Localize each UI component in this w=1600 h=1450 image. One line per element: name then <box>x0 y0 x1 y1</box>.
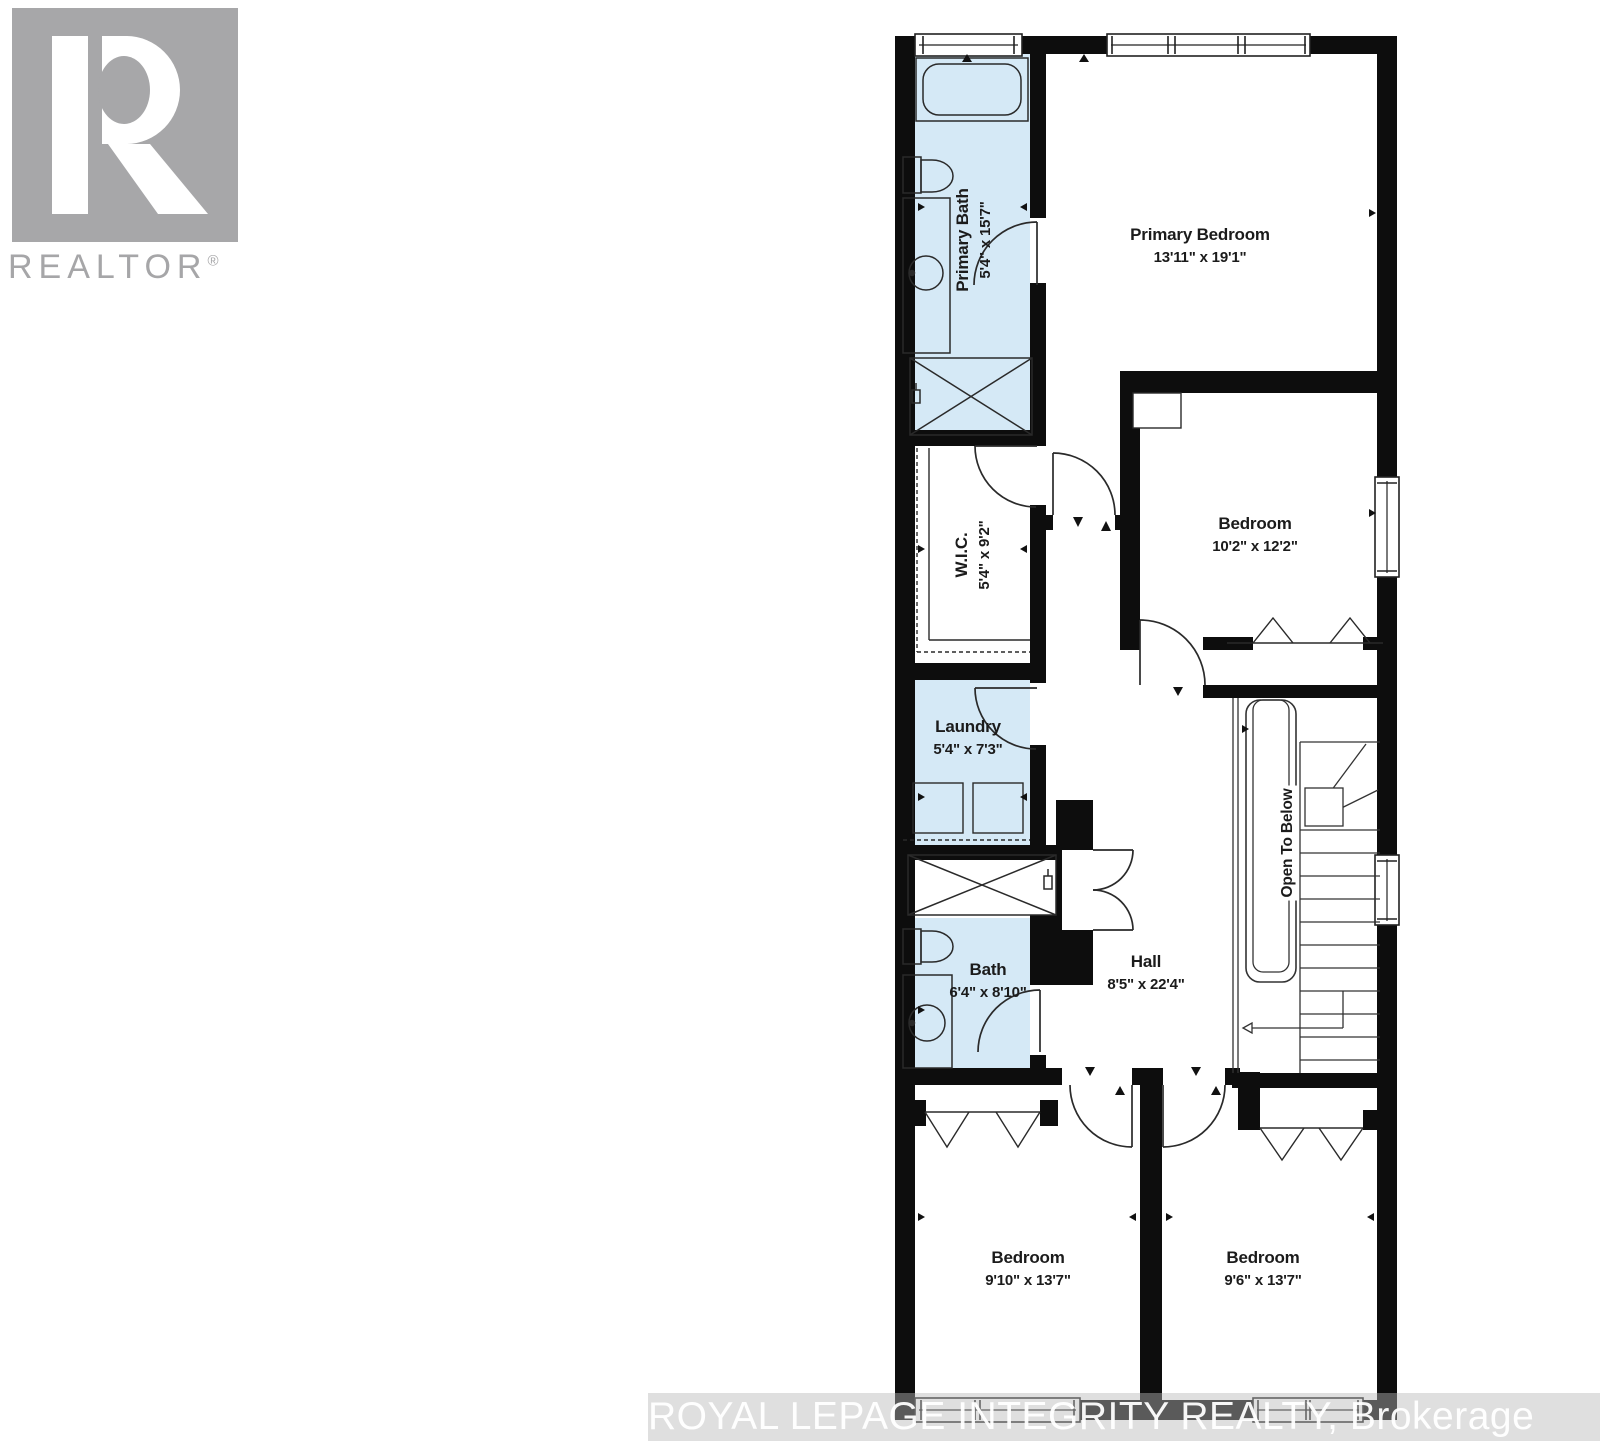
linen-closet-void <box>1062 850 1093 930</box>
linen-closet-double-doors <box>1093 850 1133 930</box>
room-dims: 5'4" x 15'7" <box>976 188 996 291</box>
shower-icon <box>908 855 1056 915</box>
room-dims: 9'6" x 13'7" <box>1224 1271 1301 1291</box>
room-name: Hall <box>1107 950 1184 975</box>
room-dims: 8'5" x 22'4" <box>1107 975 1184 995</box>
room-dims: 6'4" x 8'10" <box>949 983 1026 1003</box>
closet-and-detail-lines <box>903 393 1383 1160</box>
room-name: Primary Bath <box>951 188 976 291</box>
stairwell-label: Open To Below <box>1277 785 1299 900</box>
window-bedroom-right-wall <box>1375 477 1399 577</box>
floor-plan-page: REALTOR® <box>0 0 1600 1450</box>
room-label-primary-bedroom: Primary Bedroom 13'11" x 19'1" <box>1130 223 1270 267</box>
window-stair-right-wall <box>1375 855 1399 925</box>
room-name: Bedroom <box>985 1246 1071 1271</box>
room-dims: 5'4" x 7'3" <box>933 740 1002 760</box>
room-name: Bath <box>949 958 1026 983</box>
door-swings <box>974 222 1225 1147</box>
open-to-below-text: Open To Below <box>1277 785 1299 900</box>
staircase <box>1233 698 1380 1073</box>
room-dims: 10'2" x 12'2" <box>1212 537 1298 557</box>
room-dims: 5'4" x 9'2" <box>975 520 995 589</box>
room-label-wic: W.I.C. 5'4" x 9'2" <box>950 520 994 589</box>
room-dims: 13'11" x 19'1" <box>1130 248 1270 268</box>
room-label-hall: Hall 8'5" x 22'4" <box>1107 950 1184 994</box>
room-label-primary-bath: Primary Bath 5'4" x 15'7" <box>951 188 995 291</box>
room-label-bedroom-left: Bedroom 9'10" x 13'7" <box>985 1246 1071 1290</box>
shower-icon <box>910 358 1032 435</box>
room-dims: 9'10" x 13'7" <box>985 1271 1071 1291</box>
room-name: Bedroom <box>1212 512 1298 537</box>
room-label-bath: Bath 6'4" x 8'10" <box>949 958 1026 1002</box>
bedroom-upper-door <box>1140 620 1205 685</box>
room-name: Laundry <box>933 715 1002 740</box>
bathtub-icon <box>916 58 1028 121</box>
floor-plan-drawing <box>0 0 1600 1450</box>
window-primary-bedroom-top <box>1107 34 1310 56</box>
room-label-bedroom-right: Bedroom 9'6" x 13'7" <box>1224 1246 1301 1290</box>
wic-door <box>975 446 1037 507</box>
room-label-laundry: Laundry 5'4" x 7'3" <box>933 715 1002 759</box>
room-name: Primary Bedroom <box>1130 223 1270 248</box>
room-name: W.I.C. <box>950 520 975 589</box>
brokerage-watermark: ROYAL LEPAGE INTEGRITY REALTY, Brokerage <box>648 1393 1600 1441</box>
window-primary-bath-top <box>915 34 1022 56</box>
room-label-bedroom-upper: Bedroom 10'2" x 12'2" <box>1212 512 1298 556</box>
room-name: Bedroom <box>1224 1246 1301 1271</box>
vestibule-door <box>1053 453 1115 515</box>
